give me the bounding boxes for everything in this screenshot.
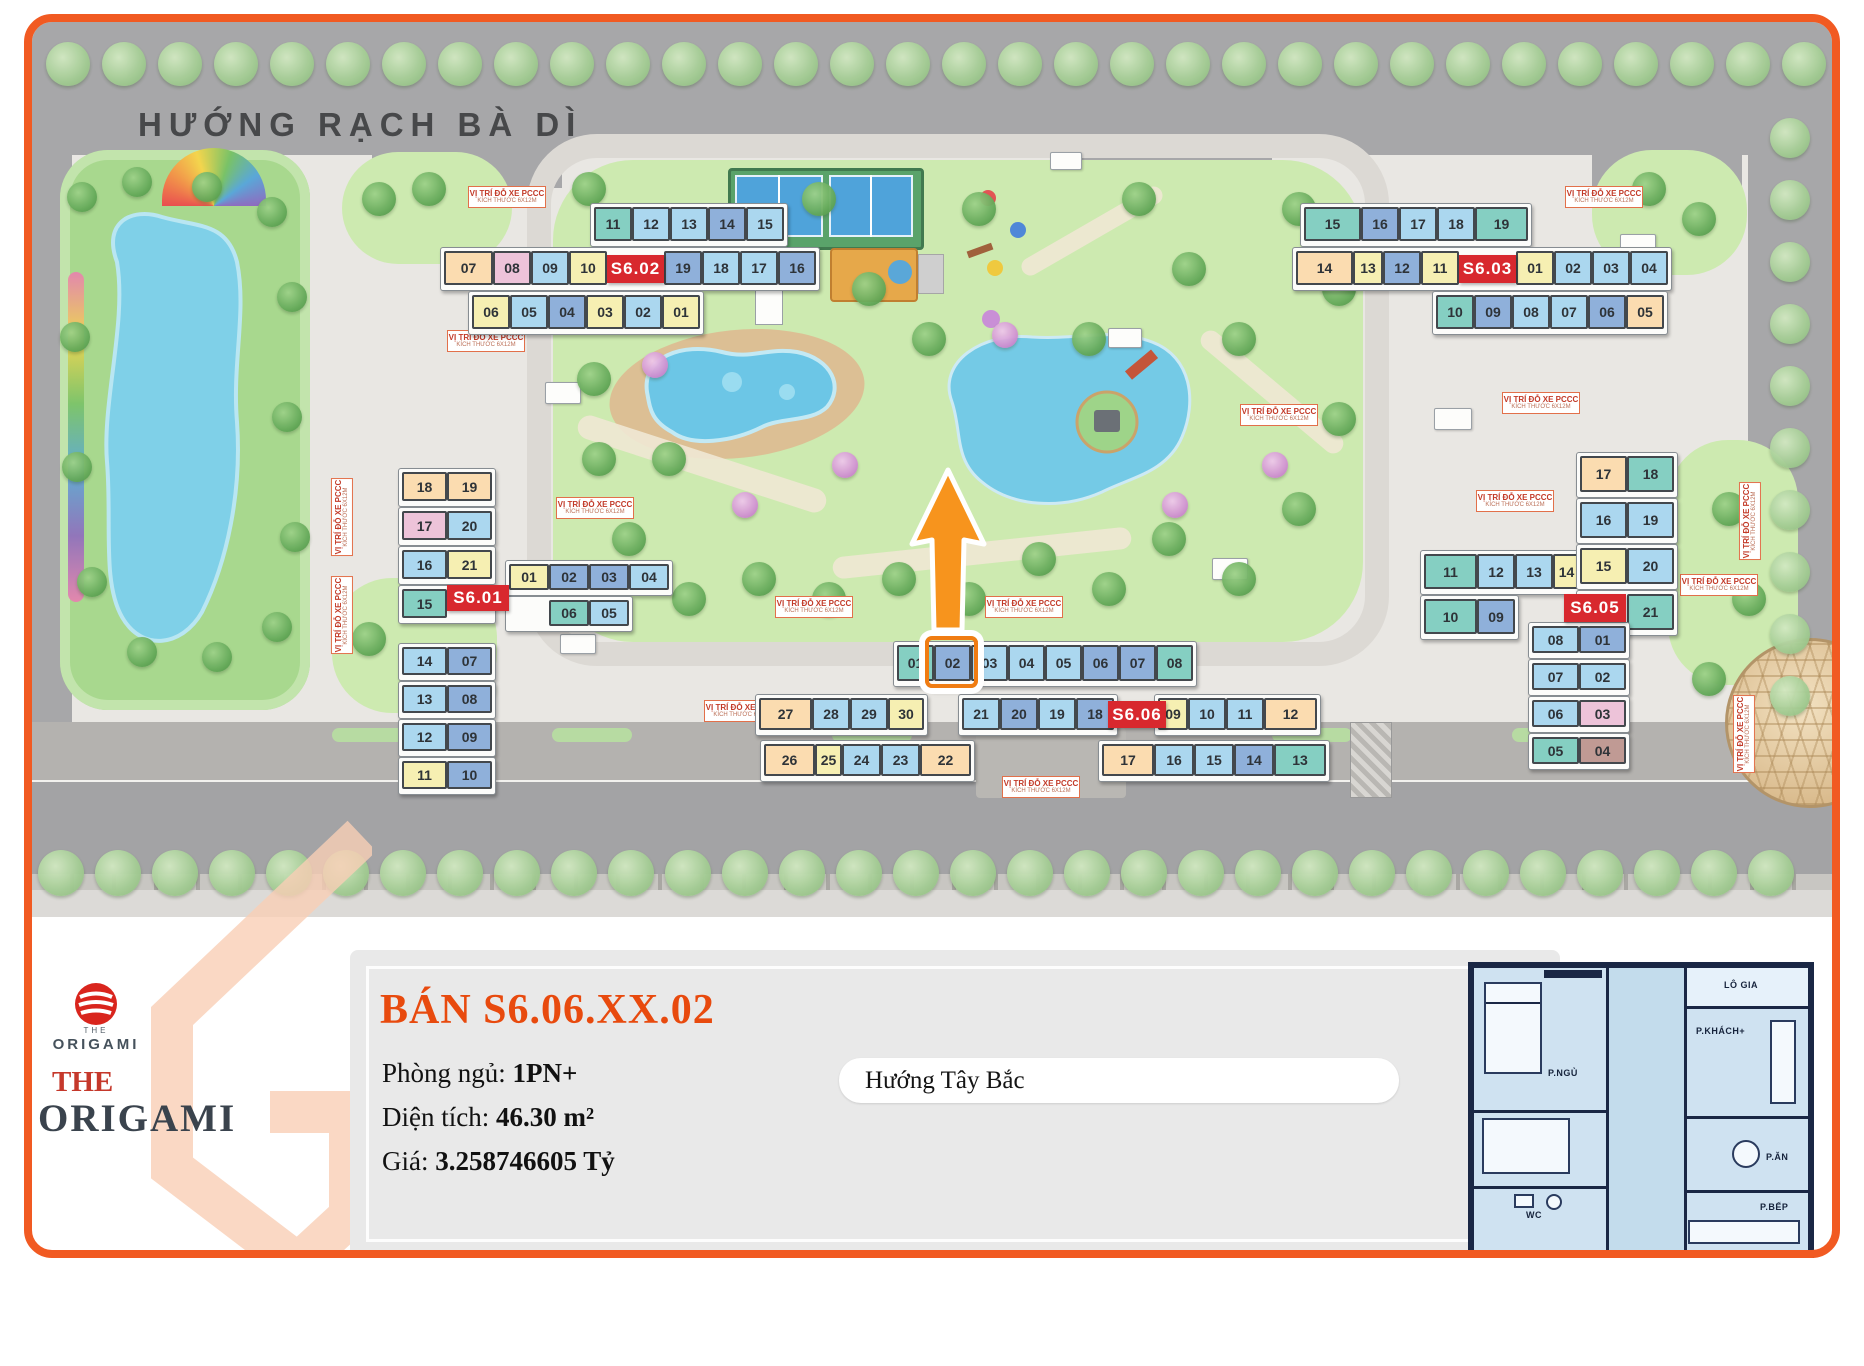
tree-icon — [1770, 676, 1810, 716]
field-value: 1PN+ — [513, 1058, 578, 1088]
floorplan-room-label: P.NGỦ — [1548, 1068, 1578, 1078]
tree-icon — [836, 850, 882, 896]
tree-icon — [1770, 552, 1810, 592]
building-row: 01020304 — [505, 560, 673, 596]
unit-cell-S6.01-20[interactable]: 20 — [447, 511, 492, 540]
unit-cell-S6.03-02[interactable]: 02 — [1554, 251, 1592, 285]
unit-cell-S6.06-10[interactable]: 10 — [1188, 698, 1226, 730]
tree-icon — [280, 522, 310, 552]
tree-icon — [1262, 452, 1288, 478]
tree-icon — [38, 850, 84, 896]
tree-icon — [102, 42, 146, 86]
unit-cell-S6.06-15[interactable]: 15 — [1194, 744, 1234, 776]
unit-cell-S6.02-13[interactable]: 13 — [670, 207, 708, 241]
unit-cell-S6.05-18[interactable]: 18 — [1627, 456, 1674, 492]
unit-cell-S6.01-21[interactable]: 21 — [447, 550, 492, 579]
tree-icon — [1278, 42, 1322, 86]
floorplan-room-label: P.ĂN — [1766, 1152, 1788, 1162]
unit-cell-S6.01-16[interactable]: 16 — [402, 550, 447, 579]
unit-cell-S6.02-09[interactable]: 09 — [531, 251, 569, 285]
unit-cell-S6.06-29[interactable]: 29 — [850, 698, 888, 730]
tree-icon — [1349, 850, 1395, 896]
unit-cell-S6.02-06[interactable]: 06 — [472, 295, 510, 329]
tree-icon — [1334, 42, 1378, 86]
tree-icon — [802, 182, 836, 216]
unit-cell-S6.02-19[interactable]: 19 — [664, 251, 702, 285]
building-row: 1520 — [1576, 544, 1678, 590]
tree-icon — [438, 42, 482, 86]
tree-icon — [202, 642, 232, 672]
tree-icon — [158, 42, 202, 86]
sport-pad — [918, 254, 944, 294]
building-row: 1112131415 — [590, 203, 788, 247]
tennis-net-line — [870, 175, 872, 237]
unit-cell-S6.01-10[interactable]: 10 — [447, 761, 492, 789]
tree-icon — [46, 42, 90, 86]
building-row: 060504030201 — [468, 291, 704, 335]
tree-icon — [1770, 118, 1810, 158]
building-row: 1819 — [398, 468, 496, 507]
unit-cell-S6.01-11[interactable]: 11 — [402, 761, 447, 789]
building-row: 1621 — [398, 546, 496, 585]
building-row: 1308 — [398, 681, 496, 719]
unit-cell-S6.05-03[interactable]: 03 — [1579, 700, 1626, 727]
tree-icon — [1520, 850, 1566, 896]
unit-cell-S6.01-15[interactable]: 15 — [402, 589, 447, 618]
building-row: 07080910S6.0219181716 — [440, 247, 820, 291]
unit-cell-S6.03-03[interactable]: 03 — [1592, 251, 1630, 285]
tree-icon — [277, 282, 307, 312]
field-label: Giá: — [382, 1146, 435, 1176]
tree-icon — [1782, 42, 1826, 86]
tree-icon — [662, 42, 706, 86]
field-label: Phòng ngủ: — [382, 1058, 513, 1088]
building-row: 1720 — [398, 507, 496, 546]
unit-cell-S6.05-20[interactable]: 20 — [1627, 548, 1674, 584]
floorplan-room-label: LÔ GIA — [1724, 980, 1758, 990]
building-row: 0801 — [1528, 622, 1630, 659]
tree-icon — [652, 442, 686, 476]
tree-icon — [382, 42, 426, 86]
unit-cell-S6.03-12[interactable]: 12 — [1383, 251, 1421, 285]
tree-icon — [962, 192, 996, 226]
logo-mini-the: THE — [40, 1026, 152, 1035]
parking-label: VỊ TRÍ ĐỖ XE PCCCKÍCH THƯỚC 6X12M — [556, 497, 634, 519]
unit-cell-S6.02-01[interactable]: 01 — [662, 295, 700, 329]
street-title: HƯỚNG RẠCH BÀ DÌ — [138, 106, 582, 144]
tree-icon — [1178, 850, 1224, 896]
parking-label: VỊ TRÍ ĐỖ XE PCCCKÍCH THƯỚC 6X12M — [1680, 574, 1758, 596]
tree-icon — [665, 850, 711, 896]
tree-icon — [60, 322, 90, 352]
tree-icon — [608, 850, 654, 896]
tree-icon — [1634, 850, 1680, 896]
tree-icon — [1166, 42, 1210, 86]
unit-cell-S6.06-13[interactable]: 13 — [1274, 744, 1326, 776]
unit-cell-S6.06-08[interactable]: 08 — [1156, 645, 1193, 681]
unit-cell-S6.05-16[interactable]: 16 — [1580, 502, 1627, 538]
unit-cell-S6.06-12[interactable]: 12 — [1264, 698, 1317, 730]
unit-cell-S6.03-14[interactable]: 14 — [1296, 251, 1353, 285]
parking-label: VỊ TRÍ ĐỖ XE PCCCKÍCH THƯỚC 6X12M — [331, 576, 353, 654]
tree-icon — [1110, 42, 1154, 86]
unit-cell-S6.03-19[interactable]: 19 — [1475, 207, 1528, 241]
unit-cell-S6.03-07[interactable]: 07 — [1550, 295, 1588, 329]
logo-mini-name: ORIGAMI — [40, 1036, 152, 1053]
building-row: 100908070605 — [1432, 291, 1668, 335]
unit-cell-S6.01-01[interactable]: 01 — [509, 564, 549, 590]
hedge — [552, 728, 632, 742]
tree-icon — [122, 167, 152, 197]
unit-cell-S6.01-05[interactable]: 05 — [589, 600, 629, 626]
tree-icon — [606, 42, 650, 86]
building-label: S6.01 — [447, 585, 509, 611]
building-row: 1619 — [1576, 498, 1678, 544]
unit-cell-S6.01-19[interactable]: 19 — [447, 472, 492, 501]
tree-icon — [1726, 42, 1770, 86]
wc-fixture-shape — [1546, 1194, 1562, 1210]
unit-cell-S6.01-07[interactable]: 07 — [447, 647, 492, 675]
unit-cell-S6.06-19[interactable]: 19 — [1038, 698, 1076, 730]
unit-cell-S6.05-19[interactable]: 19 — [1627, 502, 1674, 538]
unit-cell-S6.02-11[interactable]: 11 — [594, 207, 632, 241]
listing-field-bedrooms: Phòng ngủ: 1PN+ — [382, 1058, 577, 1089]
tree-icon — [1064, 850, 1110, 896]
tree-icon — [893, 850, 939, 896]
field-label: Diện tích: — [382, 1102, 496, 1132]
site-plan-map[interactable]: HƯỚNG RẠCH BÀ DÌ — [32, 22, 1832, 917]
tree-icon — [1152, 522, 1186, 556]
unit-cell-S6.02-17[interactable]: 17 — [740, 251, 778, 285]
unit-cell-S6.03-15[interactable]: 15 — [1304, 207, 1361, 241]
unit-cell-S6.06-28[interactable]: 28 — [812, 698, 850, 730]
unit-cell-S6.02-04[interactable]: 04 — [548, 295, 586, 329]
unit-cell-S6.01-17[interactable]: 17 — [402, 511, 447, 540]
unit-cell-S6.02-18[interactable]: 18 — [702, 251, 740, 285]
tree-icon — [1322, 402, 1356, 436]
tree-icon — [1502, 42, 1546, 86]
tree-icon — [1222, 562, 1256, 596]
tree-icon — [1007, 850, 1053, 896]
unit-cell-S6.01-06[interactable]: 06 — [549, 600, 589, 626]
parking-label: VỊ TRÍ ĐỖ XE PCCCKÍCH THƯỚC 6X12M — [468, 186, 546, 208]
tree-icon — [779, 850, 825, 896]
unit-cell-S6.02-02[interactable]: 02 — [624, 295, 662, 329]
unit-cell-S6.05-21[interactable]: 21 — [1627, 594, 1674, 630]
tree-icon — [1222, 42, 1266, 86]
unit-cell-S6.05-09[interactable]: 09 — [1477, 599, 1515, 634]
logo-the: THE — [52, 1066, 113, 1099]
tree-icon — [774, 42, 818, 86]
tree-icon — [612, 522, 646, 556]
tree-icon — [262, 612, 292, 642]
unit-cell-S6.03-18[interactable]: 18 — [1437, 207, 1475, 241]
tree-icon — [214, 42, 258, 86]
unit-cell-S6.05-01[interactable]: 01 — [1579, 626, 1626, 653]
unit-cell-S6.06-11[interactable]: 11 — [1226, 698, 1264, 730]
unit-cell-S6.02-03[interactable]: 03 — [586, 295, 624, 329]
pavilion — [560, 634, 596, 654]
field-value: 3.258746605 Tỷ — [435, 1146, 615, 1176]
unit-cell-S6.05-13[interactable]: 13 — [1515, 554, 1553, 589]
tree-icon — [1122, 182, 1156, 216]
unit-cell-S6.06-16[interactable]: 16 — [1154, 744, 1194, 776]
building-row: 1009 — [1420, 595, 1519, 640]
building-row: 1209 — [398, 719, 496, 757]
unit-cell-S6.05-08[interactable]: 08 — [1532, 626, 1579, 653]
unit-cell-S6.01-13[interactable]: 13 — [402, 685, 447, 713]
fp-hallway — [1606, 968, 1684, 1252]
logo-name: ORIGAMI — [38, 1096, 236, 1141]
unit-cell-S6.05-12[interactable]: 12 — [1477, 554, 1515, 589]
tree-icon — [494, 850, 540, 896]
unit-cell-S6.01-03[interactable]: 03 — [589, 564, 629, 590]
tree-icon — [852, 272, 886, 306]
tree-icon — [832, 452, 858, 478]
sofa-shape — [1770, 1020, 1796, 1104]
unit-cell-S6.01-04[interactable]: 04 — [629, 564, 669, 590]
unit-cell-S6.06-30[interactable]: 30 — [888, 698, 924, 730]
kitchen-counter-shape — [1688, 1220, 1800, 1244]
unit-cell-S6.02-16[interactable]: 16 — [778, 251, 816, 285]
unit-cell-S6.06-04[interactable]: 04 — [1008, 645, 1045, 681]
unit-cell-S6.02-07[interactable]: 07 — [444, 251, 493, 285]
tree-icon — [380, 850, 426, 896]
building-row: 0605 — [505, 596, 633, 632]
unit-cell-S6.05-02[interactable]: 02 — [1579, 663, 1626, 690]
tree-icon — [257, 197, 287, 227]
unit-cell-S6.06-17[interactable]: 17 — [1102, 744, 1154, 776]
unit-cell-S6.05-17[interactable]: 17 — [1580, 456, 1627, 492]
unit-cell-S6.01-14[interactable]: 14 — [402, 647, 447, 675]
unit-cell-S6.06-22[interactable]: 22 — [920, 744, 971, 776]
tree-icon — [1770, 242, 1810, 282]
floorplan-room-label: P.BẾP — [1760, 1202, 1788, 1212]
tree-icon — [998, 42, 1042, 86]
tree-icon — [67, 182, 97, 212]
tree-icon — [77, 567, 107, 597]
direction-value: Hướng Tây Bắc — [865, 1067, 1025, 1095]
building-label: S6.06 — [1108, 701, 1166, 728]
tree-icon — [742, 562, 776, 596]
tree-icon — [992, 322, 1018, 348]
unit-cell-S6.06-25[interactable]: 25 — [815, 744, 842, 776]
playground-equipment — [987, 260, 1003, 276]
building-label: S6.03 — [1459, 255, 1516, 283]
highlighted-unit-ring[interactable] — [925, 636, 978, 688]
building-row: 09101112 — [1154, 694, 1321, 736]
tree-icon — [886, 42, 930, 86]
tree-icon — [270, 42, 314, 86]
parking-label: VỊ TRÍ ĐỖ XE PCCCKÍCH THƯỚC 6X12M — [1739, 482, 1761, 560]
unit-cell-S6.02-08[interactable]: 08 — [493, 251, 531, 285]
floorplan-room-label: WC — [1526, 1210, 1542, 1220]
unit-cell-S6.06-24[interactable]: 24 — [842, 744, 881, 776]
building-row: 1516171819 — [1300, 203, 1532, 247]
parking-label: VỊ TRÍ ĐỖ XE PCCCKÍCH THƯỚC 6X12M — [331, 478, 353, 556]
building-label: S6.02 — [607, 255, 664, 283]
tree-icon — [1172, 252, 1206, 286]
unit-cell-S6.06-05[interactable]: 05 — [1045, 645, 1082, 681]
building-label: S6.05 — [1564, 594, 1626, 622]
tree-icon — [550, 42, 594, 86]
unit-cell-S6.06-14[interactable]: 14 — [1234, 744, 1274, 776]
unit-cell-S6.01-08[interactable]: 08 — [447, 685, 492, 713]
pavilion — [1434, 408, 1472, 430]
unit-cell-S6.03-01[interactable]: 01 — [1516, 251, 1554, 285]
unit-cell-S6.02-15[interactable]: 15 — [746, 207, 784, 241]
tree-icon — [722, 850, 768, 896]
unit-cell-S6.03-08[interactable]: 08 — [1512, 295, 1550, 329]
wc-fixture-shape — [1514, 1194, 1534, 1208]
tree-icon — [582, 442, 616, 476]
unit-cell-S6.02-10[interactable]: 10 — [569, 251, 607, 285]
tree-icon — [437, 850, 483, 896]
floorplan-image: P.NGỦ P.KHÁCH+ P.ĂN WC P.BẾP LÔ GIA — [1468, 962, 1814, 1258]
tree-icon — [942, 42, 986, 86]
table-shape — [1732, 1140, 1760, 1168]
tree-icon — [1092, 572, 1126, 606]
unit-cell-S6.03-10[interactable]: 10 — [1436, 295, 1474, 329]
parking-label: VỊ TRÍ ĐỖ XE PCCCKÍCH THƯỚC 6X12M — [1733, 695, 1755, 773]
tree-icon — [718, 42, 762, 86]
building-row: 27282930 — [755, 694, 928, 736]
tree-icon — [912, 322, 946, 356]
unit-cell-S6.05-07[interactable]: 07 — [1532, 663, 1579, 690]
building-row: 0603 — [1528, 696, 1630, 733]
unit-cell-S6.06-27[interactable]: 27 — [759, 698, 812, 730]
tree-icon — [1770, 490, 1810, 530]
parking-label: VỊ TRÍ ĐỖ XE PCCCKÍCH THƯỚC 6X12M — [1565, 186, 1643, 208]
tree-icon — [1614, 42, 1658, 86]
building-row: 1110 — [398, 757, 496, 795]
tree-icon — [950, 850, 996, 896]
floorplan-room-label: P.KHÁCH+ — [1696, 1026, 1745, 1036]
tree-icon — [830, 42, 874, 86]
tree-icon — [1235, 850, 1281, 896]
building-row: 14131211S6.0301020304 — [1292, 247, 1672, 291]
building-row: 11121314 — [1420, 550, 1584, 595]
building-row: 0702 — [1528, 659, 1630, 696]
tree-icon — [326, 42, 370, 86]
unit-cell-S6.01-02[interactable]: 02 — [549, 564, 589, 590]
tree-icon — [1282, 492, 1316, 526]
unit-cell-S6.05-06[interactable]: 06 — [1532, 700, 1579, 727]
tree-icon — [1691, 850, 1737, 896]
unit-cell-S6.03-05[interactable]: 05 — [1626, 295, 1664, 329]
tree-icon — [1770, 614, 1810, 654]
tree-icon — [551, 850, 597, 896]
tree-icon — [1692, 662, 1726, 696]
tree-icon — [362, 182, 396, 216]
tree-icon — [62, 452, 92, 482]
parking-label: VỊ TRÍ ĐỖ XE PCCCKÍCH THƯỚC 6X12M — [1240, 404, 1318, 426]
tree-icon — [882, 562, 916, 596]
tree-icon — [1022, 542, 1056, 576]
unit-cell-S6.06-21[interactable]: 21 — [962, 698, 1000, 730]
tree-icon — [1770, 366, 1810, 406]
direction-field[interactable]: Hướng Tây Bắc — [839, 1058, 1399, 1103]
unit-cell-S6.01-12[interactable]: 12 — [402, 723, 447, 751]
unit-cell-S6.06-23[interactable]: 23 — [881, 744, 920, 776]
tree-icon — [1682, 202, 1716, 236]
tree-icon — [572, 172, 606, 206]
pavilion — [1108, 328, 1142, 348]
listing-field-area: Diện tích: 46.30 m² — [382, 1102, 594, 1133]
hatched-parking — [1350, 722, 1392, 798]
tree-icon — [952, 582, 986, 616]
unit-cell-S6.06-26[interactable]: 26 — [764, 744, 815, 776]
unit-cell-S6.06-07[interactable]: 07 — [1119, 645, 1156, 681]
tree-icon — [1072, 322, 1106, 356]
building-row: 1716151413 — [1098, 740, 1330, 782]
tree-icon — [412, 172, 446, 206]
unit-cell-S6.05-15[interactable]: 15 — [1580, 548, 1627, 584]
unit-cell-S6.03-13[interactable]: 13 — [1353, 251, 1383, 285]
tree-icon — [1222, 322, 1256, 356]
unit-cell-S6.02-14[interactable]: 14 — [708, 207, 746, 241]
tree-icon — [642, 352, 668, 378]
tree-icon — [1670, 42, 1714, 86]
unit-cell-S6.02-05[interactable]: 05 — [510, 295, 548, 329]
pavilion — [1050, 152, 1082, 170]
unit-cell-S6.03-17[interactable]: 17 — [1399, 207, 1437, 241]
unit-cell-S6.05-04[interactable]: 04 — [1579, 737, 1626, 764]
listing-title: BÁN S6.06.XX.02 — [380, 986, 715, 1034]
unit-cell-S6.03-04[interactable]: 04 — [1630, 251, 1668, 285]
tree-icon — [1162, 492, 1188, 518]
unit-cell-S6.03-16[interactable]: 16 — [1361, 207, 1399, 241]
listing-field-price: Giá: 3.258746605 Tỷ — [382, 1146, 615, 1177]
unit-cell-S6.03-09[interactable]: 09 — [1474, 295, 1512, 329]
tree-icon — [1770, 304, 1810, 344]
unit-cell-S6.02-12[interactable]: 12 — [632, 207, 670, 241]
unit-cell-S6.03-11[interactable]: 11 — [1421, 251, 1459, 285]
tree-icon — [577, 362, 611, 396]
tree-icon — [192, 172, 222, 202]
unit-cell-S6.03-06[interactable]: 06 — [1588, 295, 1626, 329]
tree-icon — [1558, 42, 1602, 86]
tree-icon — [1577, 850, 1623, 896]
unit-cell-S6.06-06[interactable]: 06 — [1082, 645, 1119, 681]
tree-icon — [1390, 42, 1434, 86]
parking-label: VỊ TRÍ ĐỖ XE PCCCKÍCH THƯỚC 6X12M — [1476, 490, 1554, 512]
bed-shape — [1482, 1118, 1570, 1174]
bed-shape — [1484, 982, 1542, 1074]
tree-icon — [1770, 180, 1810, 220]
tree-icon — [732, 492, 758, 518]
tree-icon — [1121, 850, 1167, 896]
unit-cell-S6.05-05[interactable]: 05 — [1532, 737, 1579, 764]
tree-icon — [1446, 42, 1490, 86]
parking-label: VỊ TRÍ ĐỖ XE PCCCKÍCH THƯỚC 6X12M — [1002, 776, 1080, 798]
tree-icon — [1748, 850, 1794, 896]
tree-icon — [1463, 850, 1509, 896]
unit-cell-S6.01-09[interactable]: 09 — [447, 723, 492, 751]
unit-cell-S6.01-18[interactable]: 18 — [402, 472, 447, 501]
playground-equipment — [1010, 222, 1026, 238]
unit-cell-S6.06-20[interactable]: 20 — [1000, 698, 1038, 730]
building-row: 1718 — [1576, 452, 1678, 498]
building-row: 0504 — [1528, 733, 1630, 770]
tree-icon — [494, 42, 538, 86]
unit-cell-S6.05-10[interactable]: 10 — [1424, 599, 1477, 634]
tree-icon — [1406, 850, 1452, 896]
tree-icon — [672, 582, 706, 616]
building-row: 21201918 — [958, 694, 1118, 736]
tree-icon — [1770, 428, 1810, 468]
unit-cell-S6.05-11[interactable]: 11 — [1424, 554, 1477, 589]
